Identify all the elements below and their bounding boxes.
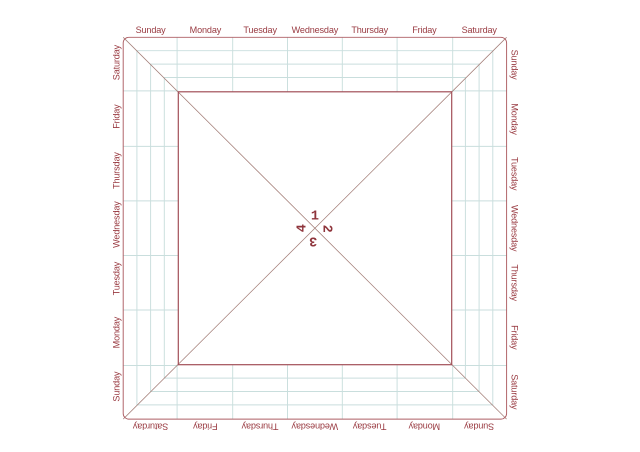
- svg-text:Wednesday: Wednesday: [291, 422, 338, 432]
- svg-text:3: 3: [309, 233, 317, 248]
- svg-text:Tuesday: Tuesday: [243, 25, 277, 35]
- svg-text:Sunday: Sunday: [136, 25, 167, 35]
- svg-text:Thursday: Thursday: [112, 152, 122, 189]
- svg-text:2: 2: [319, 225, 334, 233]
- svg-text:Monday: Monday: [190, 25, 222, 35]
- svg-text:Sunday: Sunday: [464, 422, 495, 432]
- svg-text:Thursday: Thursday: [351, 25, 388, 35]
- svg-text:Friday: Friday: [112, 104, 122, 129]
- svg-text:1: 1: [311, 209, 319, 224]
- svg-text:Thursday: Thursday: [509, 264, 519, 301]
- svg-text:4: 4: [296, 224, 311, 232]
- svg-text:Wednesday: Wednesday: [292, 25, 339, 35]
- svg-text:Sunday: Sunday: [509, 50, 519, 81]
- svg-text:Saturday: Saturday: [462, 25, 498, 35]
- svg-text:Saturday: Saturday: [132, 422, 168, 432]
- svg-text:Thursday: Thursday: [241, 422, 278, 432]
- svg-text:Friday: Friday: [509, 325, 519, 350]
- svg-text:Saturday: Saturday: [112, 44, 122, 80]
- svg-text:Wednesday: Wednesday: [112, 201, 122, 248]
- svg-text:Sunday: Sunday: [112, 371, 122, 402]
- svg-text:Tuesday: Tuesday: [509, 157, 519, 191]
- svg-text:Wednesday: Wednesday: [509, 205, 519, 252]
- svg-text:Monday: Monday: [408, 422, 440, 432]
- svg-text:Friday: Friday: [412, 25, 437, 35]
- svg-text:Friday: Friday: [193, 422, 218, 432]
- svg-text:Monday: Monday: [112, 316, 122, 348]
- svg-text:Tuesday: Tuesday: [112, 261, 122, 295]
- svg-text:Saturday: Saturday: [509, 374, 519, 410]
- svg-text:Tuesday: Tuesday: [352, 422, 386, 432]
- svg-text:Monday: Monday: [509, 103, 519, 135]
